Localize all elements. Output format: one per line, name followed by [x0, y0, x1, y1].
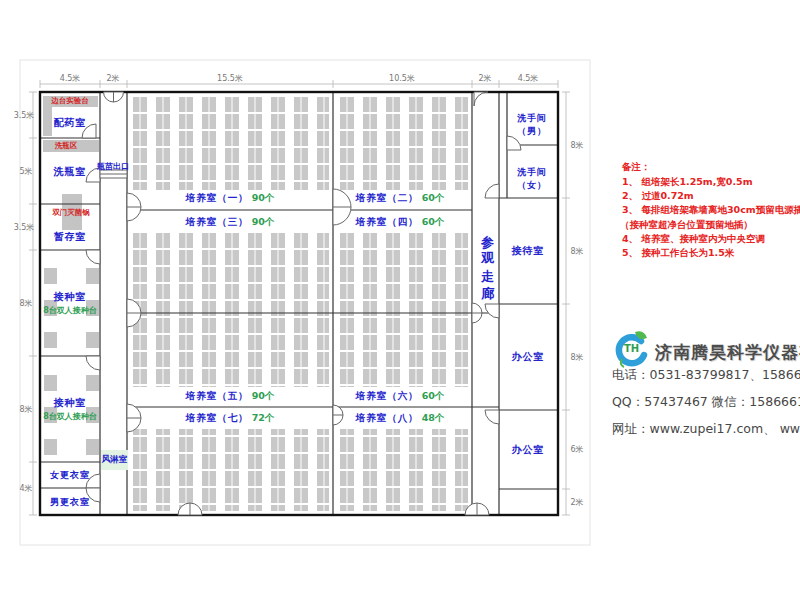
dim-right-4: 2米 [570, 497, 583, 508]
label-xipingqu: 洗瓶区 [55, 141, 78, 151]
room-label-jiedai: 接待室 [512, 244, 545, 258]
label-sterilizer: 双门灭菌锅 [52, 208, 90, 218]
dim-left-2: 3.5米 [14, 222, 35, 233]
room-label-jiezhong-2: 接种室 [54, 396, 87, 410]
room-sublabel-jiezhong-1: 8台双人接种台 [43, 305, 97, 316]
floor-plan-drawing [0, 0, 800, 600]
label-bench-top: 边台实验台 [51, 96, 89, 106]
note-item-5: 5、 接种工作台长为1.5米 [622, 247, 734, 260]
dim-right-1: 8米 [570, 246, 583, 257]
label-pingmiao-exit: 瓶苗出口 [97, 161, 129, 172]
note-item-2: 2、 过道0.72m [622, 190, 694, 203]
company-name: 济南腾昊科学仪器有限公司 [655, 341, 800, 364]
notes-title: 备注： [622, 161, 651, 174]
dim-right-3: 6米 [570, 444, 583, 455]
racks-room-4-6 [339, 231, 468, 387]
room-label-bangong-1: 办公室 [512, 350, 545, 364]
company-logo-icon: TH [610, 326, 652, 370]
room-label-wc-men-2: （男） [517, 125, 547, 138]
dim-right-2: 8米 [570, 352, 583, 363]
room-label-wc-women-1: 洗手间 [517, 166, 547, 179]
dim-top-0: 4.5米 [60, 73, 81, 84]
dim-top-5: 4.5米 [518, 73, 539, 84]
racks-room-3-5 [133, 231, 329, 387]
dim-top-4: 2米 [478, 73, 491, 84]
dim-left-5: 4米 [19, 483, 32, 494]
room-label-jiezhong-1: 接种室 [54, 290, 87, 304]
note-item-3: 3、 每排组培架靠墙离地30cm预留电源插座 [622, 204, 800, 217]
company-qq-wechat: QQ：57437467 微信：15866611552 [612, 394, 800, 411]
culture-room-8-label: 培养室（八）48个 [356, 412, 445, 425]
dim-left-4: 8米 [19, 404, 32, 415]
svg-text:TH: TH [624, 343, 639, 354]
culture-room-1-label: 培养室（一）90个 [186, 192, 275, 205]
dim-top-2: 15.5米 [217, 73, 243, 84]
culture-room-6-label: 培养室（六）60个 [356, 390, 445, 403]
racks-room-2 [339, 97, 468, 190]
room-sublabel-jiezhong-2: 8台双人接种台 [43, 411, 97, 422]
room-label-peiyao: 配药室 [54, 116, 87, 130]
floor-plan-page: 4.5米 2米 15.5米 10.5米 2米 4.5米 3.5米 5米 3.5米… [0, 0, 800, 600]
company-website: 网址：www.zupei17.com、 www.cnhtkj.com [612, 421, 800, 438]
dim-left-3: 8米 [19, 298, 32, 309]
culture-room-5-label: 培养室（五）90个 [186, 390, 275, 403]
dim-right-0: 8米 [570, 140, 583, 151]
culture-room-7-label: 培养室（七）72个 [186, 412, 275, 425]
racks-room-1 [133, 97, 329, 190]
room-label-xiping: 洗瓶室 [54, 165, 87, 179]
note-item-4: 4、 培养室、接种室内为中央空调 [622, 233, 765, 246]
room-label-wc-men-1: 洗手间 [517, 112, 547, 125]
note-item-1: 1、 组培架长1.25m,宽0.5m [622, 176, 753, 189]
company-phone: 电话：0531-83799817、15866611552 [612, 367, 800, 384]
room-label-nan-gengyi: 男更衣室 [50, 496, 90, 509]
racks-room-8 [339, 429, 468, 511]
culture-room-3-label: 培养室（三）90个 [186, 216, 275, 229]
room-label-wc-women-2: （女） [517, 179, 547, 192]
room-label-fenglin: 风淋室 [101, 450, 128, 470]
corridor-label: 参观走廊 [478, 224, 496, 292]
dim-top-3: 10.5米 [389, 73, 415, 84]
culture-room-2-label: 培养室（二）60个 [356, 192, 445, 205]
bench-side [43, 107, 52, 136]
dim-top-1: 2米 [106, 73, 119, 84]
dim-left-0: 3.5米 [14, 110, 35, 121]
room-label-zancun: 暂存室 [54, 230, 87, 244]
culture-room-4-label: 培养室（四）60个 [356, 216, 445, 229]
room-label-nv-gengyi: 女更衣室 [50, 469, 90, 482]
room-label-bangong-2: 办公室 [512, 443, 545, 457]
note-item-3b: （接种室超净台位置预留地插） [620, 219, 753, 232]
dim-left-1: 5米 [19, 166, 32, 177]
racks-room-7 [133, 429, 329, 511]
